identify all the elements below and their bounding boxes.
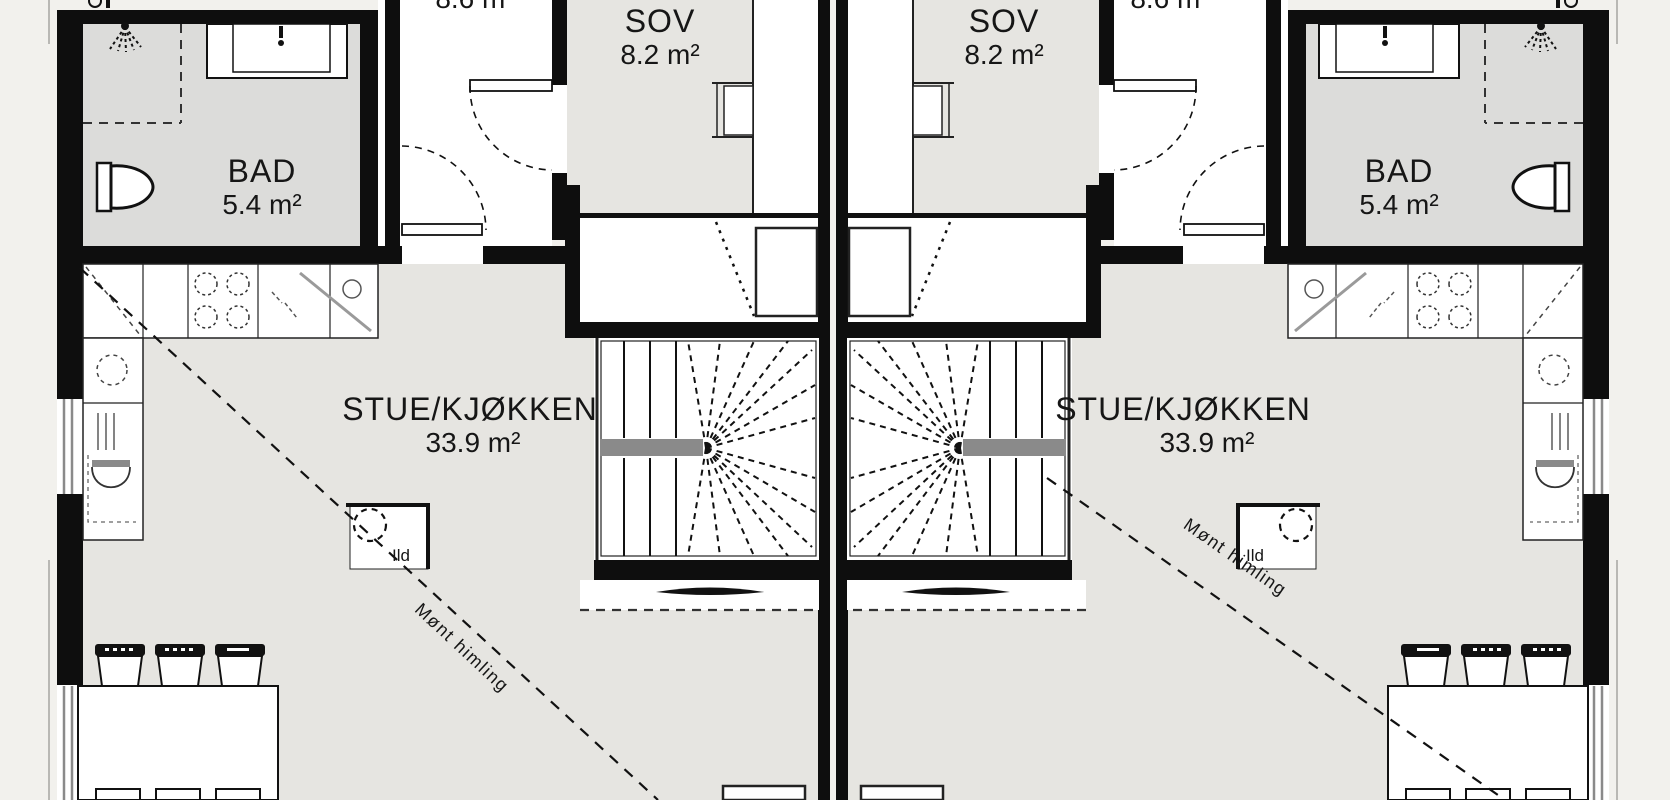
closet-cabinet — [756, 228, 817, 316]
room-area-sov-right: 8.2 m² — [964, 39, 1043, 70]
floor-plan-canvas: BAD 5.4 m² SOV 8.2 m² STUE/KJØKKEN 33.9 … — [0, 0, 1670, 800]
stair-top-wall — [565, 322, 819, 338]
hall-floor — [400, 0, 552, 246]
stair-landing-bar — [600, 439, 703, 456]
floor-plan-drawing: BAD 5.4 m² SOV 8.2 m² STUE/KJØKKEN 33.9 … — [0, 0, 1670, 800]
room-area-hall-right: 8.6 m² — [1130, 0, 1209, 14]
room-label-bad-left: BAD — [228, 153, 297, 189]
dining-table — [78, 686, 278, 800]
bedroom-bottom-wall — [567, 213, 819, 218]
room-label-bad-right: BAD — [1365, 153, 1434, 189]
room-area-stue-right: 33.9 m² — [1160, 427, 1255, 458]
exterior-wall-left-lower — [57, 498, 83, 680]
stair-threshold — [580, 580, 819, 610]
room-area-hall-left: 8.6 m² — [435, 0, 514, 14]
window-left-mid — [57, 395, 83, 498]
kitchen-counter-left — [83, 338, 143, 540]
room-label-stue-right: STUE/KJØKKEN — [1055, 391, 1311, 427]
room-area-sov-left: 8.2 m² — [620, 39, 699, 70]
staircase — [594, 338, 819, 560]
exterior-wall-left-upper — [57, 10, 83, 395]
stair-bottom-wall — [594, 560, 819, 580]
bath-bottom-wall — [57, 246, 565, 264]
fireplace-label-left: Ild — [392, 546, 410, 565]
fireplace — [346, 503, 430, 569]
closet-left-wall — [565, 185, 580, 322]
kitchen-counter-top — [83, 264, 378, 338]
room-area-bad-right: 5.4 m² — [1359, 189, 1438, 220]
top-wall — [57, 10, 400, 24]
bath-right-wall — [360, 24, 378, 246]
wardrobe-band — [753, 0, 819, 215]
room-area-stue-left: 33.9 m² — [426, 427, 521, 458]
hall-left-wall — [385, 0, 400, 246]
bedroom-door-opening — [552, 85, 567, 173]
door-opening — [402, 246, 483, 264]
room-label-sov-left: SOV — [625, 3, 696, 39]
vanity-sink — [207, 24, 347, 78]
room-area-bad-left: 5.4 m² — [222, 189, 301, 220]
cut-furniture-bottom — [723, 786, 805, 800]
party-wall — [818, 0, 830, 800]
room-label-sov-right: SOV — [969, 3, 1040, 39]
room-label-stue-left: STUE/KJØKKEN — [342, 391, 598, 427]
